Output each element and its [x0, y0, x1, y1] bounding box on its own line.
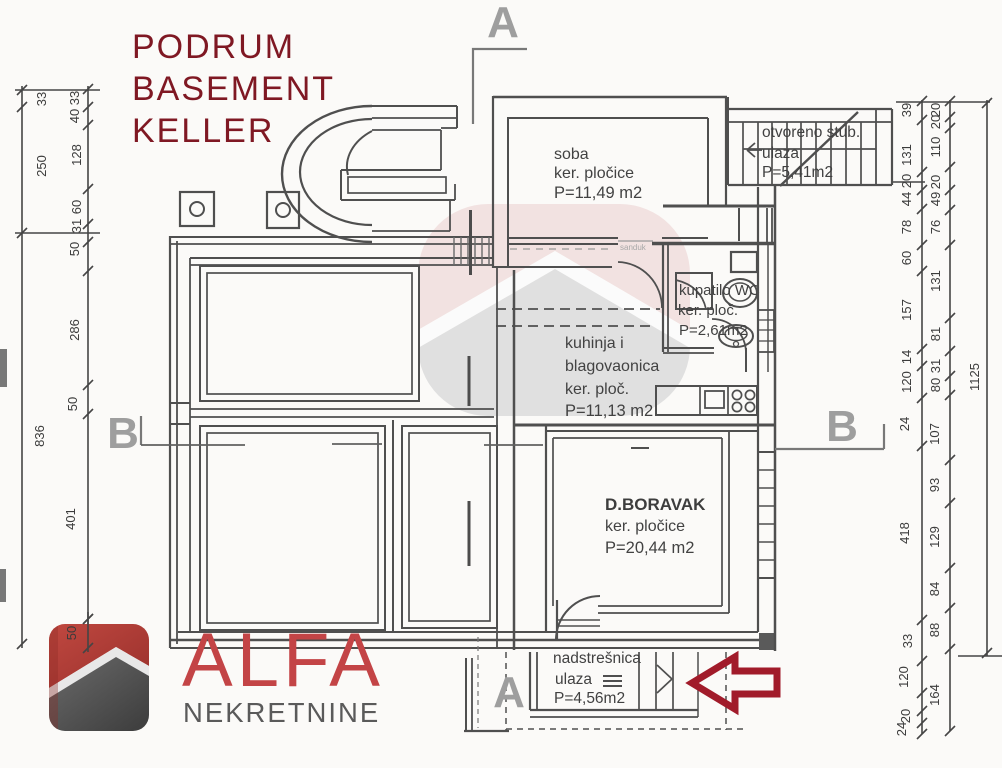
svg-text:ker. ploč.: ker. ploč. — [678, 302, 738, 319]
svg-text:B: B — [826, 402, 858, 451]
svg-text:20: 20 — [898, 709, 913, 723]
svg-text:93: 93 — [927, 478, 942, 492]
svg-text:129: 129 — [927, 526, 942, 548]
svg-text:31: 31 — [69, 219, 84, 233]
svg-text:P=2,61m2: P=2,61m2 — [679, 322, 748, 339]
svg-text:33: 33 — [67, 91, 82, 105]
svg-text:B: B — [107, 409, 139, 458]
svg-text:24: 24 — [894, 722, 909, 736]
svg-text:KELLER: KELLER — [132, 112, 274, 150]
svg-text:50: 50 — [64, 626, 79, 640]
svg-text:33: 33 — [34, 92, 49, 106]
svg-text:286: 286 — [67, 319, 82, 341]
svg-text:kupatilo WC: kupatilo WC — [679, 282, 760, 299]
svg-text:50: 50 — [67, 242, 82, 256]
svg-text:sanduk: sanduk — [620, 243, 647, 252]
svg-text:50: 50 — [65, 397, 80, 411]
svg-text:24: 24 — [897, 417, 912, 431]
svg-text:20: 20 — [928, 175, 943, 189]
svg-text:76: 76 — [928, 220, 943, 234]
svg-text:PODRUM: PODRUM — [132, 28, 295, 66]
svg-text:A: A — [487, 0, 519, 47]
svg-text:nadstrešnica: nadstrešnica — [553, 650, 641, 667]
svg-text:D.BORAVAK: D.BORAVAK — [605, 495, 706, 514]
svg-text:20: 20 — [928, 115, 943, 129]
svg-text:418: 418 — [897, 522, 912, 544]
svg-text:110: 110 — [928, 137, 943, 158]
svg-text:kuhinja i: kuhinja i — [565, 335, 624, 352]
svg-text:ker. pločice: ker. pločice — [605, 518, 685, 535]
svg-text:131: 131 — [928, 270, 943, 292]
svg-text:60: 60 — [69, 200, 84, 214]
svg-text:81: 81 — [928, 327, 943, 341]
svg-text:49: 49 — [928, 192, 943, 206]
svg-text:P=20,44 m2: P=20,44 m2 — [605, 539, 694, 557]
svg-text:1125: 1125 — [967, 363, 982, 391]
svg-text:ker. ploč.: ker. ploč. — [565, 381, 629, 398]
svg-text:BASEMENT: BASEMENT — [132, 70, 335, 108]
svg-text:44: 44 — [899, 192, 914, 206]
svg-text:ulaza: ulaza — [762, 145, 799, 162]
svg-text:soba: soba — [554, 146, 589, 163]
svg-text:NEKRETNINE: NEKRETNINE — [183, 697, 380, 728]
svg-text:P=4,56m2: P=4,56m2 — [554, 690, 625, 707]
svg-text:80: 80 — [928, 378, 943, 392]
svg-text:P=5,41m2: P=5,41m2 — [762, 164, 833, 181]
svg-text:blagovaonica: blagovaonica — [565, 358, 659, 375]
svg-text:A: A — [493, 668, 525, 717]
svg-text:otvoreno stub.: otvoreno stub. — [762, 124, 860, 141]
svg-text:84: 84 — [927, 582, 942, 596]
svg-text:250: 250 — [34, 155, 49, 177]
svg-text:P=11,13 m2: P=11,13 m2 — [565, 402, 653, 420]
svg-text:40: 40 — [67, 109, 82, 123]
svg-text:14: 14 — [899, 350, 914, 364]
svg-text:120: 120 — [896, 666, 911, 688]
svg-text:164: 164 — [927, 684, 942, 706]
svg-text:ulaza: ulaza — [555, 671, 592, 688]
svg-text:120: 120 — [899, 371, 914, 393]
svg-text:20: 20 — [899, 174, 914, 188]
svg-text:157: 157 — [899, 299, 914, 321]
svg-text:401: 401 — [63, 508, 78, 530]
svg-text:ALFA: ALFA — [182, 618, 384, 703]
svg-text:78: 78 — [899, 220, 914, 234]
svg-text:P=11,49 m2: P=11,49 m2 — [554, 184, 642, 202]
svg-text:107: 107 — [927, 423, 942, 445]
svg-text:39: 39 — [899, 103, 914, 117]
svg-text:ker. pločice: ker. pločice — [554, 165, 634, 182]
svg-text:33: 33 — [900, 634, 915, 648]
svg-text:60: 60 — [899, 251, 914, 265]
svg-text:131: 131 — [899, 144, 914, 166]
svg-text:88: 88 — [927, 623, 942, 637]
svg-text:128: 128 — [69, 144, 84, 166]
svg-text:31: 31 — [928, 359, 943, 373]
svg-text:836: 836 — [32, 425, 47, 447]
